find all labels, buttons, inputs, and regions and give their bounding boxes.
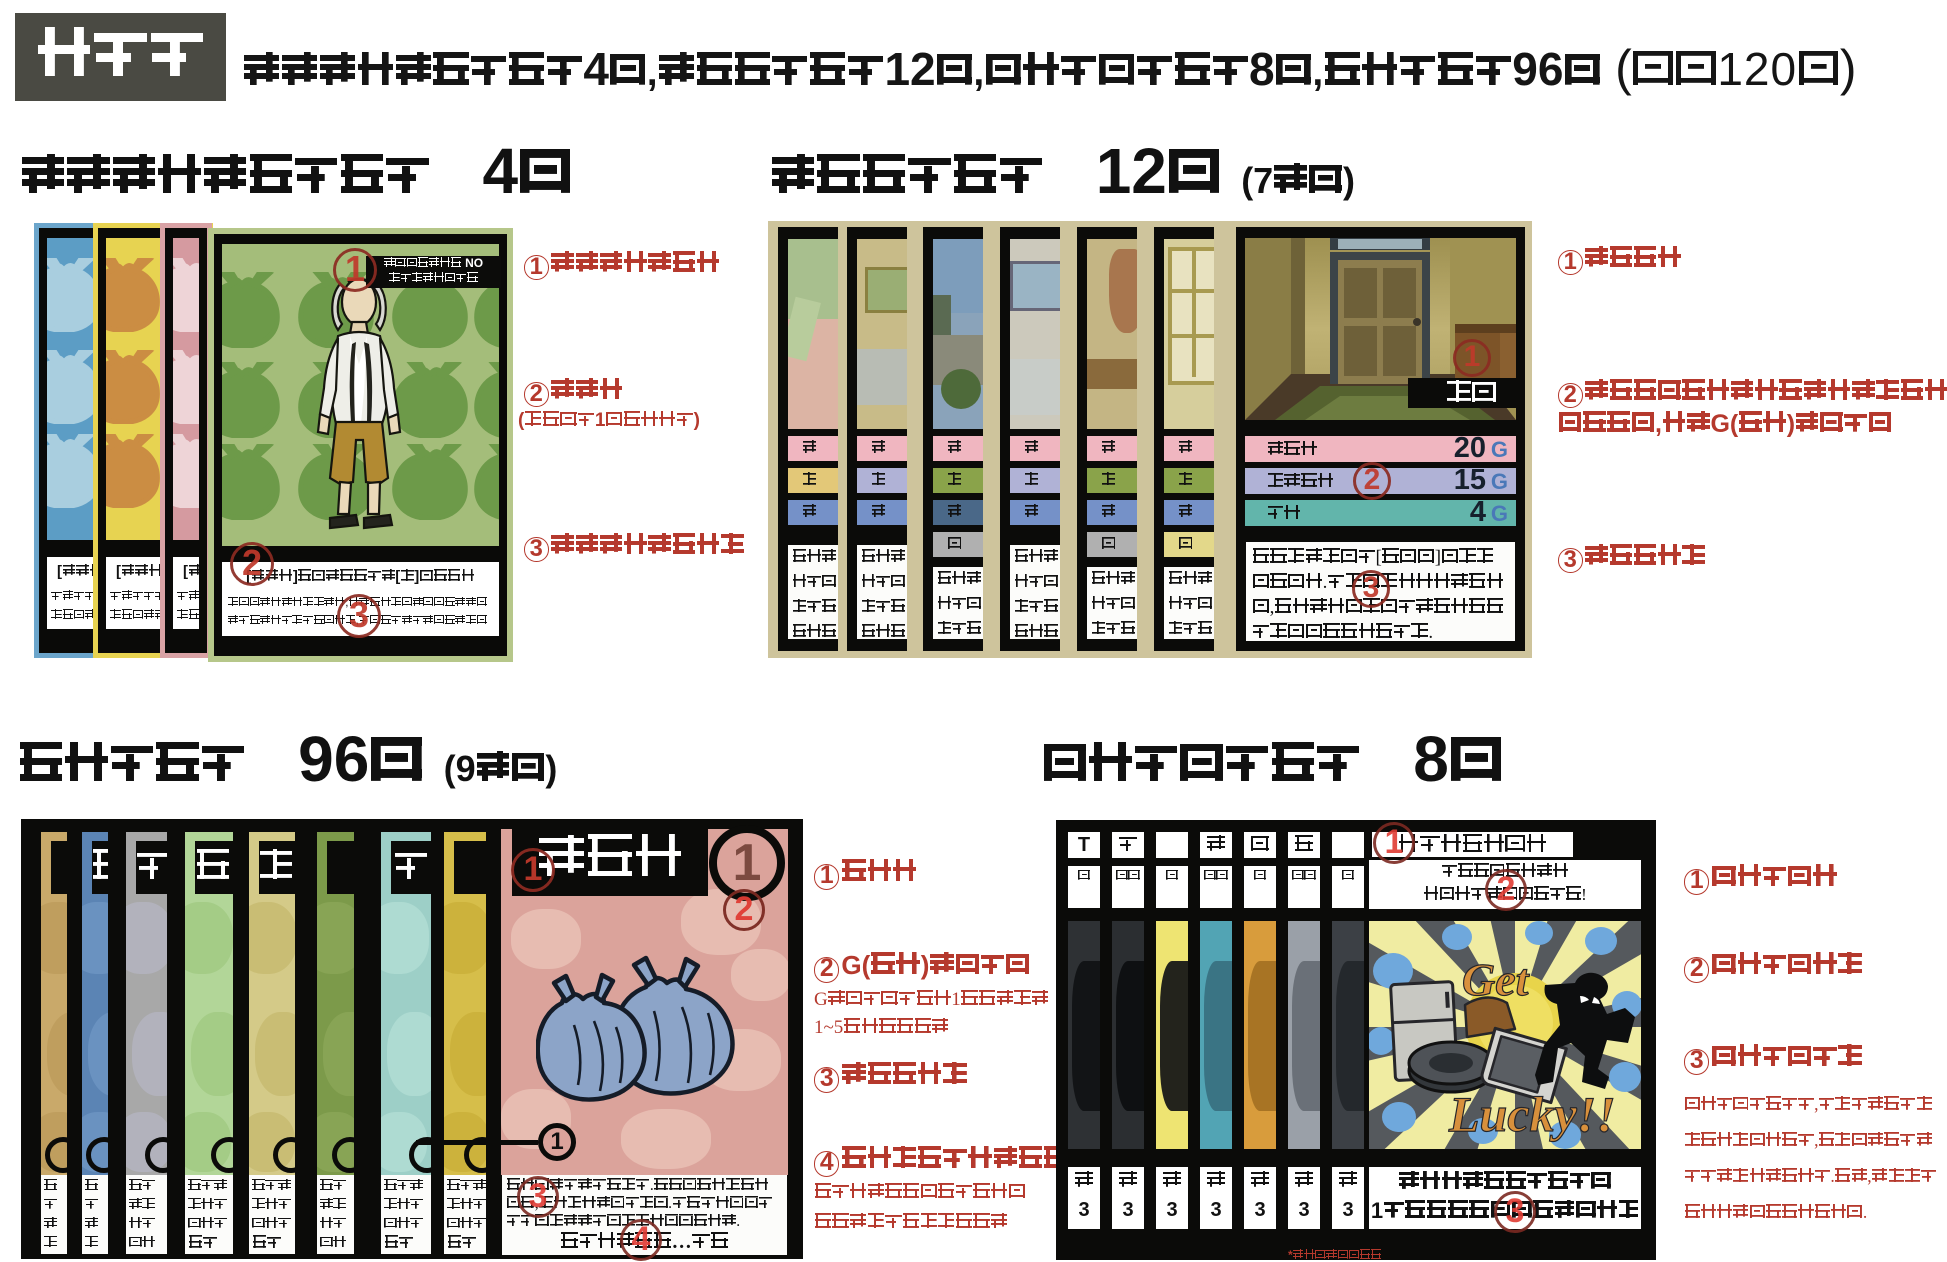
svg-text:Get: Get: [1462, 954, 1530, 1005]
svg-text:Lucky!!: Lucky!!: [1448, 1086, 1616, 1142]
